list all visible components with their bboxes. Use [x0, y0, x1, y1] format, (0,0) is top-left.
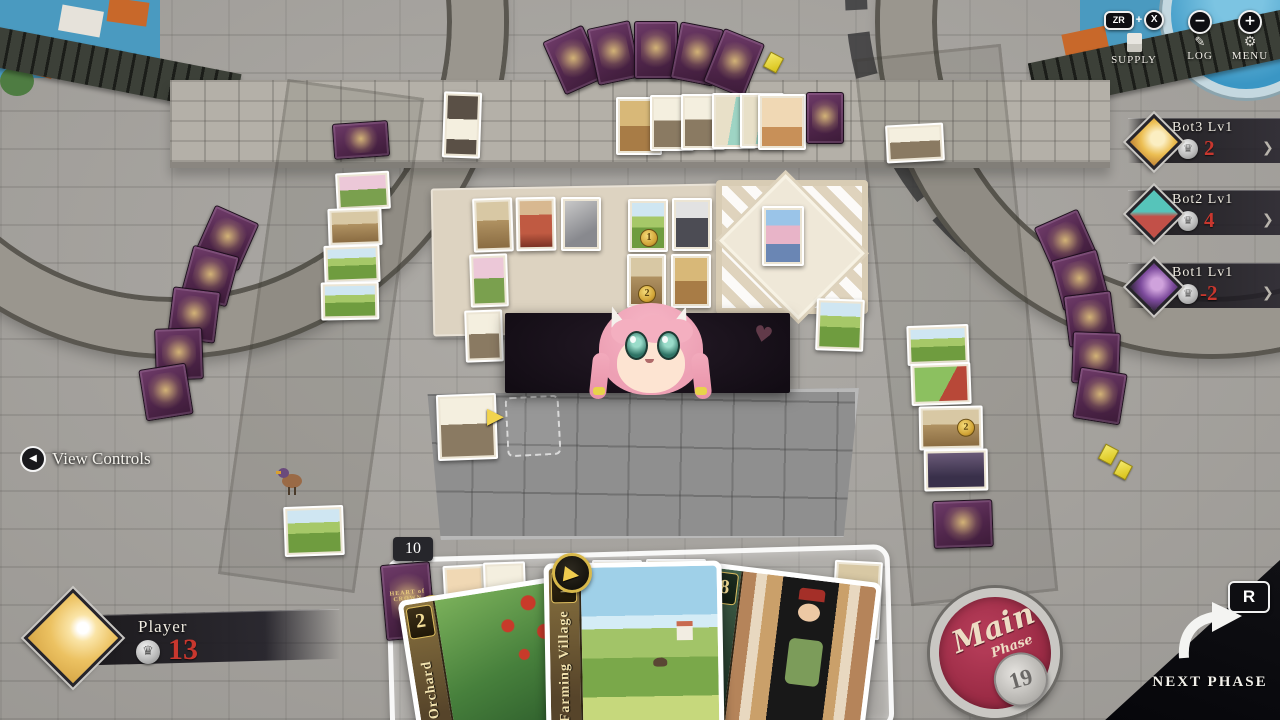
- board-card-back[interactable]: [806, 92, 844, 144]
- deck-count-badge: 10: [393, 537, 433, 561]
- anya-character: [589, 309, 713, 397]
- play-card-button[interactable]: ▶: [552, 553, 592, 593]
- heart-icon: ♥: [751, 321, 776, 350]
- supply-hud-group[interactable]: ZR + X SUPPLY: [1096, 10, 1172, 66]
- next-phase-arrow-icon[interactable]: [1172, 598, 1244, 666]
- supply-card[interactable]: [323, 244, 380, 284]
- zr-button-icon: ZR: [1104, 11, 1134, 30]
- supply-card[interactable]: [335, 171, 391, 212]
- board-card[interactable]: [885, 123, 945, 164]
- duke-hat: [798, 587, 825, 602]
- supply-card[interactable]: [283, 505, 345, 557]
- board-card[interactable]: [442, 91, 482, 158]
- chevron-icon: ❯: [1262, 285, 1274, 301]
- menu-hud-group[interactable]: + ⚙ MENU: [1228, 10, 1272, 62]
- supply-deck[interactable]: [332, 120, 390, 160]
- play-marker-icon: ▶: [487, 404, 513, 430]
- next-phase-button[interactable]: NEXT PHASE: [1140, 674, 1280, 691]
- x-button-icon: X: [1144, 10, 1164, 30]
- bird: [276, 462, 306, 496]
- back-triangle-icon: ◀: [20, 446, 46, 472]
- menu-label: MENU: [1228, 50, 1272, 62]
- stone-arch-left: [0, 0, 504, 354]
- opponent-score: -2: [1200, 281, 1218, 306]
- duke-robe: [784, 637, 823, 687]
- board-card[interactable]: [758, 94, 806, 150]
- game-screen: 1 2 2 ▶: [0, 0, 1280, 720]
- gear-icon: ⚙: [1228, 34, 1272, 50]
- coin-value: 1: [640, 229, 658, 247]
- opponent-panel-bot1[interactable]: Bot1 Lv1 ♛ -2 ❯: [1122, 257, 1280, 311]
- supply-card[interactable]: [469, 253, 509, 307]
- opponent-score: 4: [1204, 208, 1215, 233]
- village-house: [677, 621, 693, 640]
- notepad-icon: ✎: [1178, 35, 1222, 50]
- supply-card[interactable]: [516, 197, 557, 252]
- supply-card[interactable]: 2: [627, 254, 666, 308]
- supply-card[interactable]: [672, 198, 712, 251]
- supply-card[interactable]: [910, 362, 971, 406]
- opponent-name: Bot1 Lv1: [1172, 265, 1233, 281]
- gem: [763, 51, 784, 73]
- plus-separator: +: [1136, 14, 1142, 26]
- opponent-hand-card-back: [138, 363, 194, 422]
- view-controls-button[interactable]: ◀ View Controls: [20, 446, 151, 472]
- log-hud-group[interactable]: − ✎ LOG: [1178, 10, 1222, 62]
- supply-card[interactable]: [561, 197, 601, 251]
- chevron-icon: ❯: [1262, 140, 1274, 156]
- document-icon: [1127, 33, 1142, 52]
- board-card[interactable]: [815, 298, 865, 352]
- event-banner: ♥: [505, 313, 790, 393]
- opponent-score: 2: [1204, 136, 1215, 161]
- supply-label: SUPPLY: [1096, 54, 1172, 66]
- log-label: LOG: [1178, 50, 1222, 62]
- player-avatar: [24, 589, 123, 688]
- gem: [1098, 443, 1119, 465]
- card-name: Farming Village: [556, 603, 574, 720]
- opponent-panel-bot3[interactable]: Bot3 Lv1 ♛ 2 ❯: [1122, 112, 1280, 166]
- supply-card[interactable]: [924, 448, 989, 491]
- plus-button-icon: +: [1238, 10, 1262, 34]
- coin-value: 2: [638, 285, 656, 303]
- supply-card[interactable]: [472, 197, 514, 252]
- gem: [1113, 460, 1133, 481]
- card-slot-placeholder[interactable]: [504, 395, 561, 458]
- chevron-icon: ❯: [1262, 212, 1274, 228]
- card-art: [725, 571, 876, 720]
- card-art: [581, 566, 720, 720]
- supply-card[interactable]: [464, 309, 504, 362]
- supply-card[interactable]: [321, 281, 380, 320]
- supply-card[interactable]: [327, 207, 382, 247]
- princess-card[interactable]: [762, 206, 804, 266]
- minus-button-icon: −: [1188, 10, 1212, 34]
- opponent-panel-bot2[interactable]: Bot2 Lv1 ♛ 4 ❯: [1122, 184, 1280, 238]
- player-bar: [89, 609, 340, 666]
- next-phase-label: NEXT PHASE: [1152, 674, 1267, 690]
- view-controls-label: View Controls: [52, 449, 151, 469]
- duke-face: [797, 602, 821, 623]
- player-score: 13: [168, 633, 198, 667]
- opponent-name: Bot2 Lv1: [1172, 192, 1233, 208]
- card-cost: 2: [405, 604, 436, 640]
- opponent-name: Bot3 Lv1: [1172, 120, 1233, 136]
- supply-card[interactable]: 1: [628, 199, 668, 252]
- horse: [653, 657, 667, 666]
- player-panel[interactable]: Player ♛ 13: [20, 585, 350, 695]
- discard-pile[interactable]: [932, 499, 994, 549]
- crown-medal-icon: ♛: [136, 640, 160, 664]
- supply-card[interactable]: 2: [919, 405, 984, 450]
- supply-card[interactable]: [906, 324, 969, 366]
- opponent-hand-card-back: [1072, 367, 1128, 426]
